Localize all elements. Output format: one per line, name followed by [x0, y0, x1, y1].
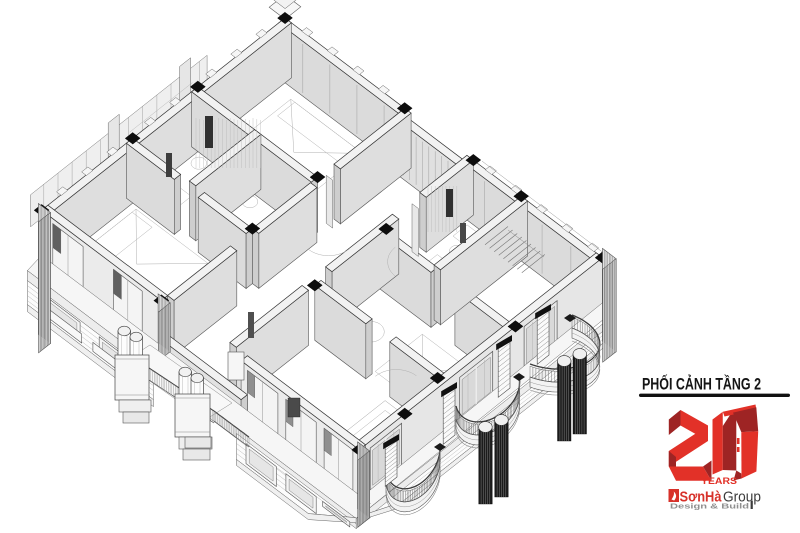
- svg-text:Design & Build: Design & Build: [670, 502, 750, 511]
- svg-text:PHỐI CẢNH TẦNG 2: PHỐI CẢNH TẦNG 2: [642, 374, 761, 394]
- svg-text:YEARS: YEARS: [701, 476, 737, 486]
